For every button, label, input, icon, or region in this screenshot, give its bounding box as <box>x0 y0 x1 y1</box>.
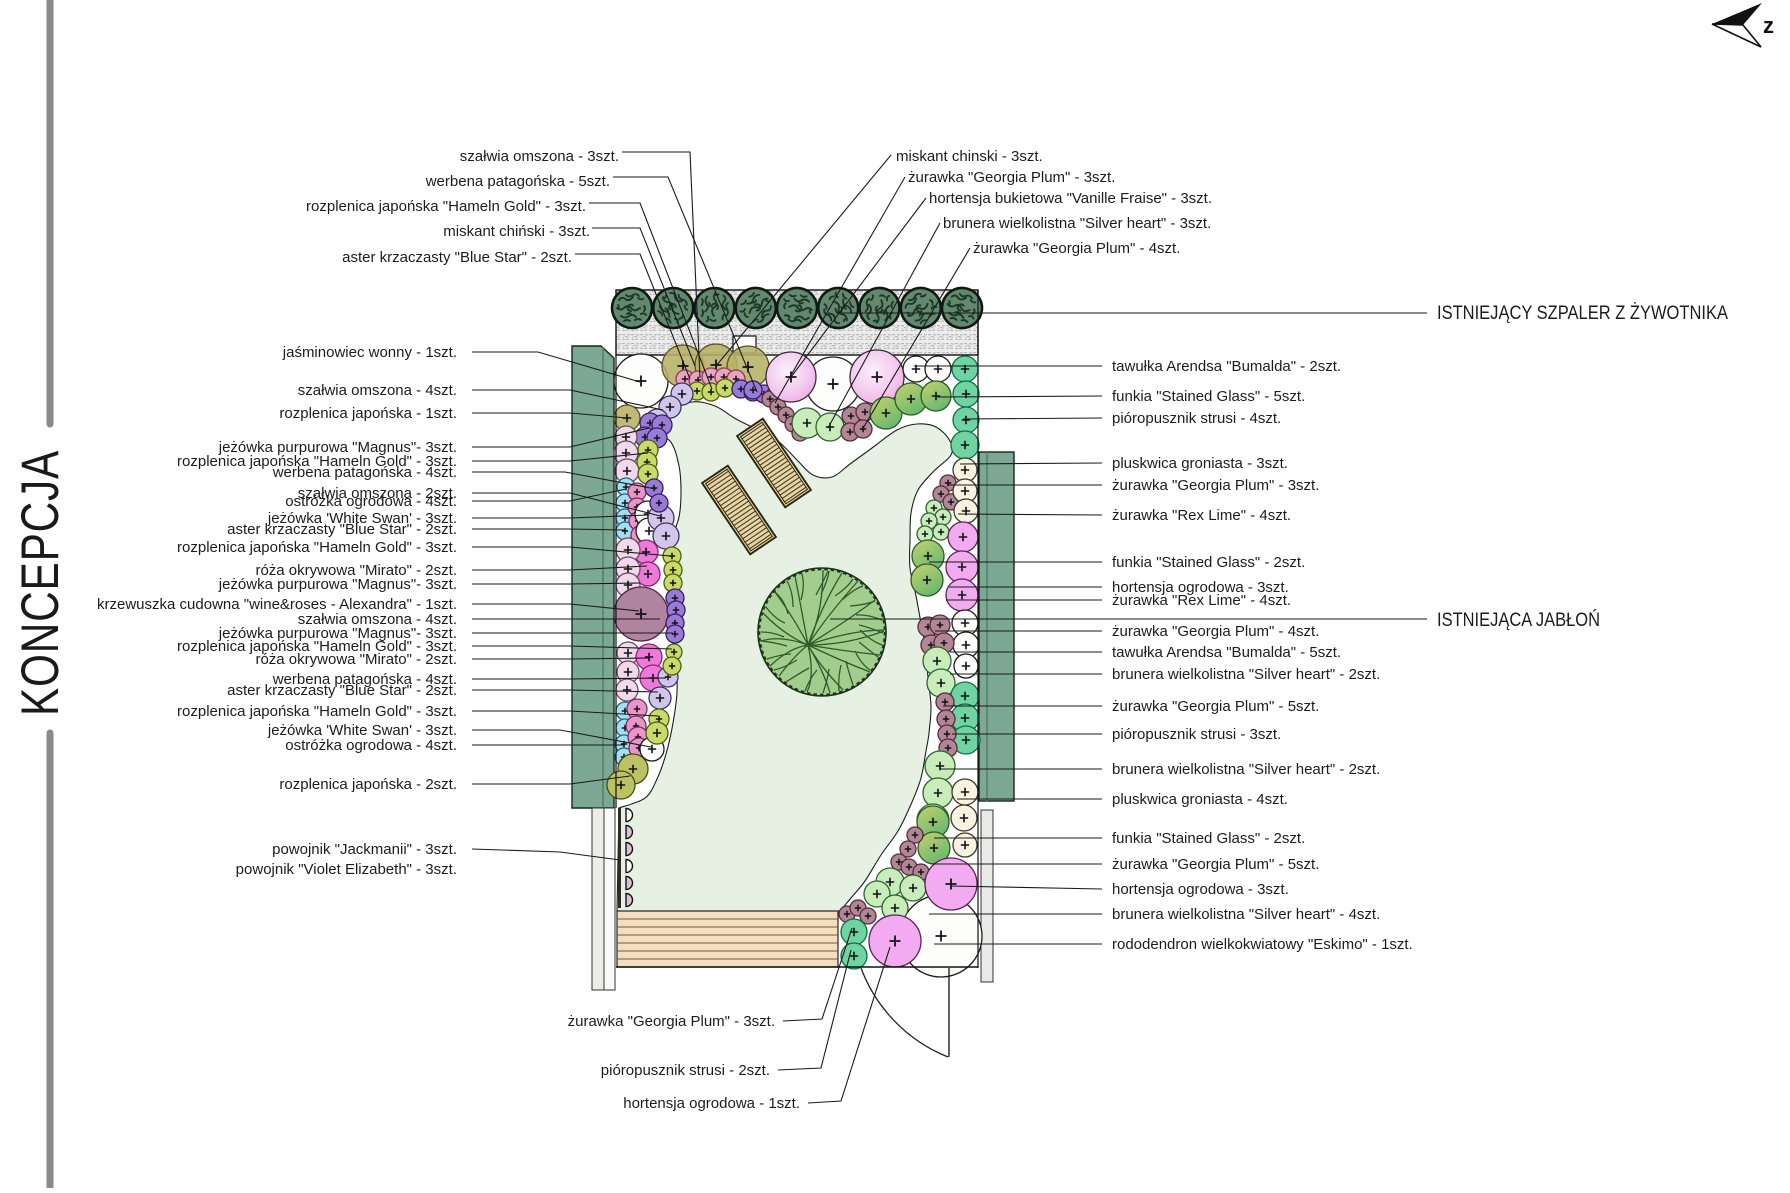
svg-text:werbena patagońska - 5szt.: werbena patagońska - 5szt. <box>425 173 610 190</box>
svg-text:rozplenica japońska "Hameln Go: rozplenica japońska "Hameln Gold" - 3szt… <box>306 198 586 215</box>
svg-text:funkia "Stained Glass" - 2szt.: funkia "Stained Glass" - 2szt. <box>1112 830 1305 847</box>
svg-text:żurawka "Rex Lime" - 4szt.: żurawka "Rex Lime" - 4szt. <box>1112 507 1291 524</box>
svg-text:żurawka "Georgia Plum" - 3szt: żurawka "Georgia Plum" - 3szt. <box>1112 477 1319 494</box>
svg-text:tawułka Arendsa "Bumalda" - 2s: tawułka Arendsa "Bumalda" - 2szt. <box>1112 358 1341 375</box>
svg-text:hortensja bukietowa "Vanille F: hortensja bukietowa "Vanille Fraise" - 3… <box>929 190 1212 207</box>
svg-text:aster krzaczasty "Blue Star" -: aster krzaczasty "Blue Star" - 2szt. <box>342 249 572 266</box>
svg-text:ostróżka ogrodowa - 4szt.: ostróżka ogrodowa - 4szt. <box>285 493 457 510</box>
svg-text:powojnik "Violet Elizabeth" -: powojnik "Violet Elizabeth" - 3szt. <box>236 861 457 878</box>
svg-text:żurawka "Georgia Plum" - 3szt: żurawka "Georgia Plum" - 3szt. <box>908 169 1115 186</box>
svg-text:ISTNIEJĄCY SZPALER Z ŻYWOTNIKA: ISTNIEJĄCY SZPALER Z ŻYWOTNIKA <box>1437 303 1728 324</box>
svg-text:hortensja ogrodowa - 3szt.: hortensja ogrodowa - 3szt. <box>1112 881 1289 898</box>
svg-text:żurawka "Rex Lime" - 4szt.: żurawka "Rex Lime" - 4szt. <box>1112 592 1291 609</box>
svg-text:KONCEPCJA: KONCEPCJA <box>11 450 70 716</box>
svg-text:pióropusznik strusi - 4szt.: pióropusznik strusi - 4szt. <box>1112 410 1281 427</box>
svg-text:rozplenica japońska "Hameln Go: rozplenica japońska "Hameln Gold" - 3szt… <box>177 703 457 720</box>
svg-text:brunera wielkolistna "Silver h: brunera wielkolistna "Silver heart" - 4s… <box>1112 906 1380 923</box>
svg-text:rododendron wielkokwiatowy "Es: rododendron wielkokwiatowy "Eskimo" - 1s… <box>1112 936 1413 953</box>
svg-text:szałwia omszona - 4szt.: szałwia omszona - 4szt. <box>298 382 457 399</box>
svg-text:żurawka "Georgia Plum" - 5szt: żurawka "Georgia Plum" - 5szt. <box>1112 698 1319 715</box>
svg-text:szałwia omszona - 3szt.: szałwia omszona - 3szt. <box>460 148 619 165</box>
svg-text:pluskwica groniasta - 3szt.: pluskwica groniasta - 3szt. <box>1112 455 1288 472</box>
svg-text:miskant chiński - 3szt.: miskant chiński - 3szt. <box>443 223 590 240</box>
svg-text:ISTNIEJĄCA JABŁOŃ: ISTNIEJĄCA JABŁOŃ <box>1437 610 1600 631</box>
svg-text:ostróżka ogrodowa - 4szt.: ostróżka ogrodowa - 4szt. <box>285 737 457 754</box>
svg-text:pióropusznik strusi - 2szt.: pióropusznik strusi - 2szt. <box>601 1062 770 1079</box>
svg-text:miskant chinski - 3szt.: miskant chinski - 3szt. <box>896 148 1043 165</box>
svg-text:rozplenica japońska - 2szt.: rozplenica japońska - 2szt. <box>279 776 457 793</box>
svg-text:brunera wielkolistna "Silver h: brunera wielkolistna "Silver heart" - 2s… <box>1112 761 1380 778</box>
svg-text:żurawka "Georgia Plum" - 3szt.: żurawka "Georgia Plum" - 3szt. <box>568 1013 775 1030</box>
svg-text:pluskwica groniasta - 4szt.: pluskwica groniasta - 4szt. <box>1112 791 1288 808</box>
svg-text:brunera wielkolistna "Silver h: brunera wielkolistna "Silver heart" - 2s… <box>1112 666 1380 683</box>
svg-text:aster krzaczasty "Blue Star" -: aster krzaczasty "Blue Star" - 2szt. <box>227 521 457 538</box>
svg-text:tawułka Arendsa "Bumalda" - 5s: tawułka Arendsa "Bumalda" - 5szt. <box>1112 644 1341 661</box>
svg-text:żurawka "Georgia Plum" - 4szt: żurawka "Georgia Plum" - 4szt. <box>1112 623 1319 640</box>
svg-text:rozplenica japońska - 1szt.: rozplenica japońska - 1szt. <box>279 405 457 422</box>
svg-text:z: z <box>1763 13 1774 38</box>
svg-text:powojnik "Jackmanii" - 3szt.: powojnik "Jackmanii" - 3szt. <box>272 841 457 858</box>
svg-text:brunera wielkolistna "Silver h: brunera wielkolistna "Silver heart" - 3s… <box>943 215 1211 232</box>
svg-text:róża okrywowa "Mirato" - 2szt.: róża okrywowa "Mirato" - 2szt. <box>255 651 457 668</box>
svg-text:żurawka "Georgia Plum" - 4szt: żurawka "Georgia Plum" - 4szt. <box>973 240 1180 257</box>
svg-text:werbena patagońska - 4szt.: werbena patagońska - 4szt. <box>272 464 457 481</box>
svg-text:aster krzaczasty "Blue Star" -: aster krzaczasty "Blue Star" - 2szt. <box>227 682 457 699</box>
svg-text:jeżówka purpurowa "Magnus"- 3s: jeżówka purpurowa "Magnus"- 3szt. <box>218 576 457 593</box>
svg-text:funkia "Stained Glass" - 2szt.: funkia "Stained Glass" - 2szt. <box>1112 554 1305 571</box>
svg-text:hortensja ogrodowa - 1szt.: hortensja ogrodowa - 1szt. <box>623 1095 800 1112</box>
svg-text:rozplenica japońska "Hameln Go: rozplenica japońska "Hameln Gold" - 3szt… <box>177 539 457 556</box>
svg-text:funkia "Stained Glass" - 5szt.: funkia "Stained Glass" - 5szt. <box>1112 388 1305 405</box>
svg-text:żurawka "Georgia Plum" - 5szt.: żurawka "Georgia Plum" - 5szt. <box>1112 856 1319 873</box>
svg-text:pióropusznik strusi - 3szt.: pióropusznik strusi - 3szt. <box>1112 726 1281 743</box>
svg-text:jaśminowiec wonny - 1szt.: jaśminowiec wonny - 1szt. <box>282 344 457 361</box>
